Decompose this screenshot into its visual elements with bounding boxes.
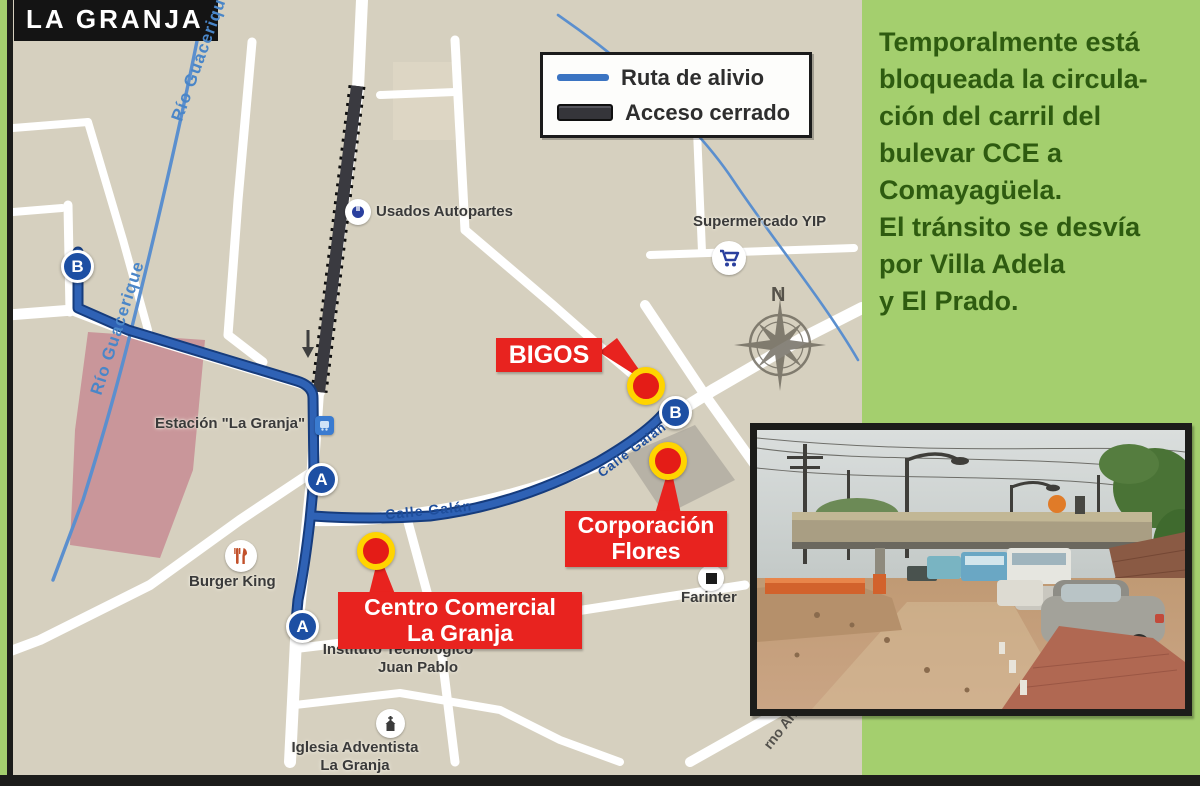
poi-label-usados: Usados Autopartes: [376, 203, 513, 220]
compass-n-label: N: [771, 284, 785, 307]
construction-photo-scene: [757, 430, 1185, 709]
legend-route-label: Ruta de alivio: [621, 65, 764, 91]
closed-bar-key-icon: [557, 104, 613, 121]
bigos-point-marker: [627, 367, 665, 405]
info-panel-text: Temporalmente está bloqueada la circula-…: [879, 24, 1189, 320]
legend-row-closed: Acceso cerrado: [557, 100, 809, 126]
route-line-key-icon: [557, 74, 609, 81]
closed-access-bar: [319, 86, 357, 392]
map-title: LA GRANJA: [14, 0, 218, 41]
poi-label-farinter: Farinter: [681, 589, 737, 606]
poi-label-instituto-line2: Juan Pablo: [308, 659, 528, 676]
map-legend: Ruta de alivio Acceso cerrado: [540, 52, 812, 138]
building-block: [393, 62, 455, 140]
callout-bigos: BIGOS: [496, 338, 602, 372]
burger-king-restaurant-icon: [225, 540, 257, 572]
route-marker-b-west: B: [61, 250, 94, 283]
usados-autopartes-icon: [345, 199, 371, 225]
route-marker-a-south: A: [286, 610, 319, 643]
farinter-marker-icon: [698, 565, 724, 591]
direction-arrow-icon: [302, 330, 314, 358]
iglesia-church-icon: [376, 709, 405, 738]
legend-closed-label: Acceso cerrado: [625, 100, 790, 126]
callout-corporacion-flores: Corporación Flores: [565, 511, 727, 567]
map-panel: LA GRANJA Ruta de alivio Acceso cerrado …: [13, 0, 862, 775]
centro-point-marker: [357, 532, 395, 570]
corporacion-point-marker: [649, 442, 687, 480]
estacion-station-icon: [315, 416, 334, 435]
construction-photo: [750, 423, 1192, 716]
poi-label-iglesia-line1: Iglesia Adventista: [245, 739, 465, 756]
poi-label-estacion: Estación "La Granja": [155, 415, 305, 432]
route-marker-b-east: B: [659, 396, 692, 429]
legend-row-route: Ruta de alivio: [557, 65, 809, 91]
infographic: LA GRANJA Ruta de alivio Acceso cerrado …: [0, 0, 1200, 786]
poi-label-burger-king: Burger King: [189, 573, 276, 590]
pink-zone: [70, 332, 205, 558]
poi-label-iglesia-line2: La Granja: [245, 757, 465, 774]
route-marker-a-center: A: [305, 463, 338, 496]
bottom-frame-bar: [0, 775, 1200, 786]
callout-centro-comercial: Centro Comercial La Granja: [338, 592, 582, 649]
poi-label-supermercado: Supermercado YIP: [693, 213, 826, 230]
supermercado-cart-icon: [712, 241, 746, 275]
